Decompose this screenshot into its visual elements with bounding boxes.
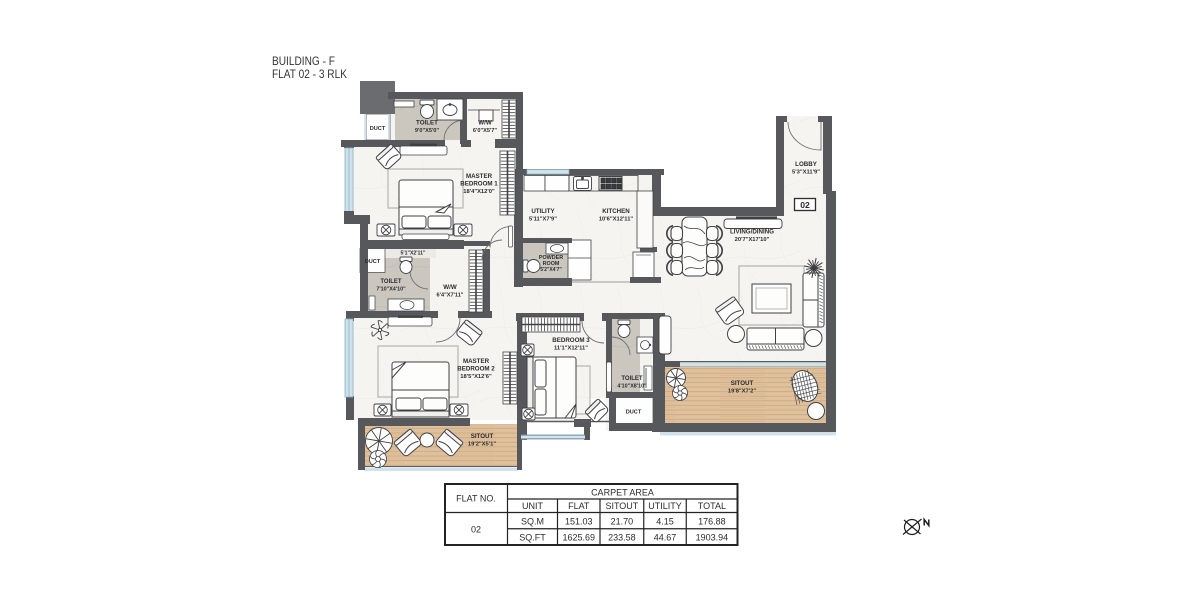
svg-text:MASTER: MASTER <box>463 358 490 365</box>
svg-text:DUCT: DUCT <box>370 126 386 132</box>
svg-text:UNIT: UNIT <box>522 501 543 511</box>
svg-text:BEDROOM 2: BEDROOM 2 <box>457 366 495 373</box>
svg-text:19'8"X7'2": 19'8"X7'2" <box>728 389 756 395</box>
svg-text:4.15: 4.15 <box>656 516 674 526</box>
svg-text:SITOUT: SITOUT <box>471 433 494 440</box>
svg-text:5'3"X11'9": 5'3"X11'9" <box>792 170 820 176</box>
svg-text:233.58: 233.58 <box>608 533 636 543</box>
svg-text:10'6"X12'11": 10'6"X12'11" <box>599 217 634 223</box>
svg-text:BUILDING - F: BUILDING - F <box>272 55 335 68</box>
svg-text:BEDROOM 3: BEDROOM 3 <box>552 337 590 344</box>
svg-text:18'4"X12'0": 18'4"X12'0" <box>463 189 495 195</box>
svg-text:TOILET: TOILET <box>621 376 643 382</box>
svg-text:1903.94: 1903.94 <box>696 533 729 543</box>
svg-text:FLAT 02 - 3 RLK: FLAT 02 - 3 RLK <box>272 68 348 81</box>
svg-text:MASTER: MASTER <box>466 173 493 180</box>
svg-text:1625.69: 1625.69 <box>562 533 595 543</box>
svg-text:02: 02 <box>800 200 810 210</box>
svg-text:SQ.FT: SQ.FT <box>519 533 546 543</box>
svg-text:9'0"X5'0": 9'0"X5'0" <box>415 128 439 134</box>
svg-text:LIVING/DINING: LIVING/DINING <box>730 229 774 236</box>
svg-text:W/W: W/W <box>443 284 457 291</box>
svg-text:5'1"X2'11": 5'1"X2'11" <box>401 251 427 257</box>
svg-text:SQ.M: SQ.M <box>521 516 544 526</box>
svg-text:176.88: 176.88 <box>698 516 726 526</box>
svg-text:11'1"X12'11": 11'1"X12'11" <box>554 346 588 352</box>
svg-text:151.03: 151.03 <box>565 516 593 526</box>
svg-text:44.67: 44.67 <box>654 533 677 543</box>
svg-text:DUCT: DUCT <box>626 410 642 416</box>
svg-text:19'2"X5'1": 19'2"X5'1" <box>468 442 496 448</box>
svg-text:TOILET: TOILET <box>416 120 438 127</box>
svg-text:20'7"X17'10": 20'7"X17'10" <box>735 237 770 243</box>
svg-text:LOBBY: LOBBY <box>795 161 818 168</box>
svg-text:FLAT NO.: FLAT NO. <box>456 494 496 504</box>
svg-text:TOTAL: TOTAL <box>698 501 726 511</box>
svg-text:5'2"X4'7": 5'2"X4'7" <box>540 267 562 273</box>
svg-text:6'4"X7'11": 6'4"X7'11" <box>437 293 464 299</box>
svg-text:CARPET AREA: CARPET AREA <box>591 488 654 498</box>
svg-text:DUCT: DUCT <box>365 259 381 265</box>
svg-text:KITCHEN: KITCHEN <box>602 208 630 215</box>
svg-text:7'10"X4'10": 7'10"X4'10" <box>376 287 406 293</box>
svg-text:TOILET: TOILET <box>380 279 402 285</box>
svg-text:02: 02 <box>471 525 481 535</box>
svg-text:SITOUT: SITOUT <box>605 501 638 511</box>
svg-text:FLAT: FLAT <box>568 501 590 511</box>
svg-text:5'11"X7'9": 5'11"X7'9" <box>529 217 557 223</box>
svg-text:UTILITY: UTILITY <box>648 501 682 511</box>
svg-text:4'10"X8'10": 4'10"X8'10" <box>617 384 647 390</box>
svg-text:W/W: W/W <box>478 120 492 127</box>
svg-text:21.70: 21.70 <box>611 516 634 526</box>
svg-text:18'5"X12'6": 18'5"X12'6" <box>460 374 492 380</box>
svg-text:UTILITY: UTILITY <box>531 208 555 215</box>
svg-text:SITOUT: SITOUT <box>731 380 754 387</box>
svg-text:BEDROOM 1: BEDROOM 1 <box>460 181 498 188</box>
svg-text:6'0"X5'7": 6'0"X5'7" <box>473 128 497 134</box>
